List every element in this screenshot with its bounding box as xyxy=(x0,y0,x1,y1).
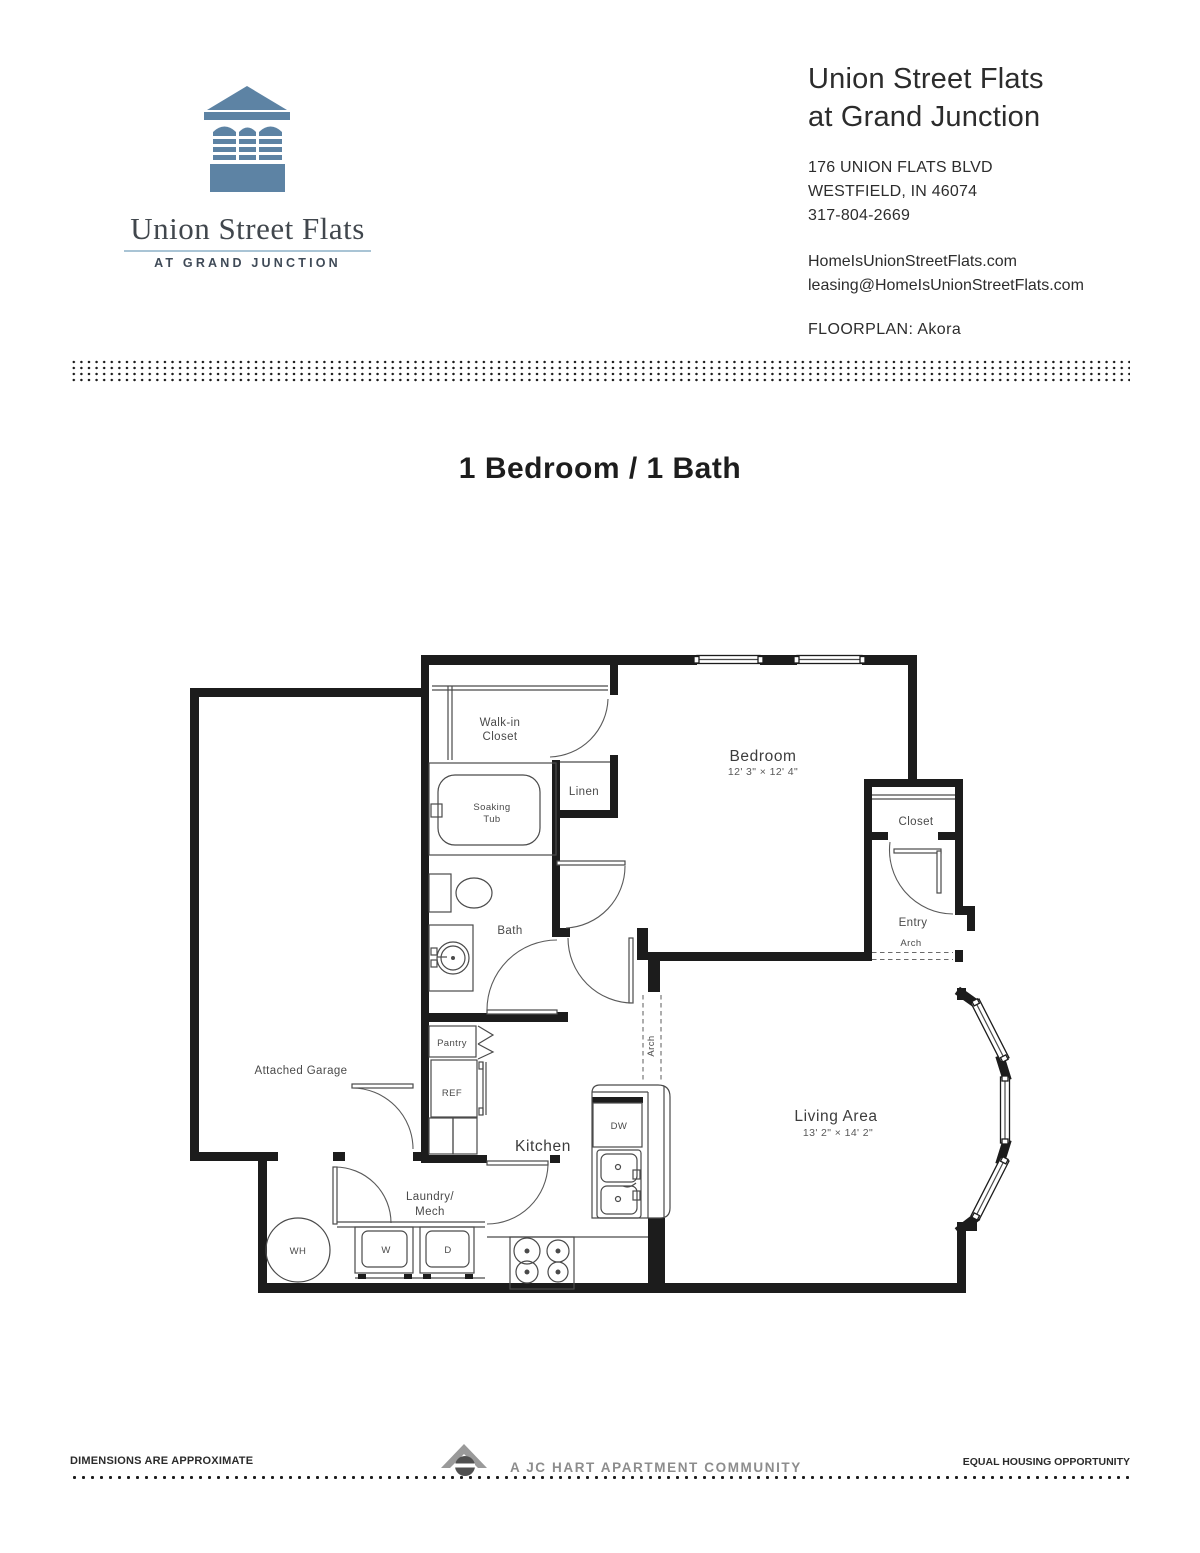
kitchen-sink xyxy=(597,1150,641,1218)
entry-door xyxy=(889,842,953,914)
floorplan-flyer-page: Union Street Flats AT GRAND JUNCTION Uni… xyxy=(0,0,1200,1553)
laundry-label: Laundry/ xyxy=(406,1191,454,1203)
bath-door xyxy=(487,940,557,1014)
kitchen-label: Kitchen xyxy=(515,1138,571,1155)
garage-label: Attached Garage xyxy=(255,1065,348,1077)
stove xyxy=(510,1237,574,1289)
ref-label: REF xyxy=(442,1088,462,1099)
entry-label: Entry xyxy=(899,917,928,929)
kitchen-counter xyxy=(592,1085,670,1218)
bedroom-window-1 xyxy=(694,656,763,664)
footer-dotted-rule xyxy=(70,1474,1130,1481)
floorplan-drawing: Walk-in Closet Linen Soaking Tub Bath Be… xyxy=(0,0,1200,1553)
entry-arch-label: Arch xyxy=(900,938,921,949)
bedroom-window-2 xyxy=(794,656,865,664)
dw-label: DW xyxy=(611,1121,628,1132)
dryer-label: D xyxy=(444,1245,451,1256)
kitchen-door xyxy=(487,1161,548,1224)
bay-window-top xyxy=(971,998,1010,1063)
arch-openings xyxy=(643,953,953,1084)
bay-window-middle xyxy=(1001,1076,1010,1144)
hall-door xyxy=(568,938,633,1003)
toilet xyxy=(429,874,492,912)
living-area-dims: 13' 2" × 14' 2" xyxy=(803,1127,873,1139)
equal-housing-label: EQUAL HOUSING OPPORTUNITY xyxy=(0,1456,1130,1468)
kitchen-arch-label: Arch xyxy=(646,1035,657,1056)
svg-text:Mech: Mech xyxy=(415,1206,445,1218)
walkin-closet-door xyxy=(550,699,608,757)
bedroom-door xyxy=(557,861,625,928)
linen-label: Linen xyxy=(569,786,599,798)
closet-label: Closet xyxy=(899,816,934,828)
laundry-door xyxy=(333,1167,391,1224)
walls xyxy=(190,655,1006,1293)
svg-text:Closet: Closet xyxy=(483,731,518,743)
bath-label: Bath xyxy=(497,925,522,937)
svg-text:Tub: Tub xyxy=(483,814,500,825)
soaking-tub-label: Soaking xyxy=(473,802,510,813)
washer-dryer xyxy=(337,1222,485,1279)
washer-label: W xyxy=(381,1245,390,1256)
wh-label: WH xyxy=(290,1246,307,1257)
garage-door xyxy=(352,1084,413,1149)
bay-window-bottom xyxy=(971,1156,1010,1221)
pantry-label: Pantry xyxy=(437,1038,467,1049)
bedroom-label: Bedroom xyxy=(729,748,796,765)
room-labels: Walk-in Closet Linen Soaking Tub Bath Be… xyxy=(255,717,934,1257)
bedroom-dims: 12' 3" × 12' 4" xyxy=(728,766,798,778)
bath-sink xyxy=(429,925,473,991)
walkin-closet-label: Walk-in xyxy=(480,717,521,729)
living-area-label: Living Area xyxy=(794,1108,877,1125)
